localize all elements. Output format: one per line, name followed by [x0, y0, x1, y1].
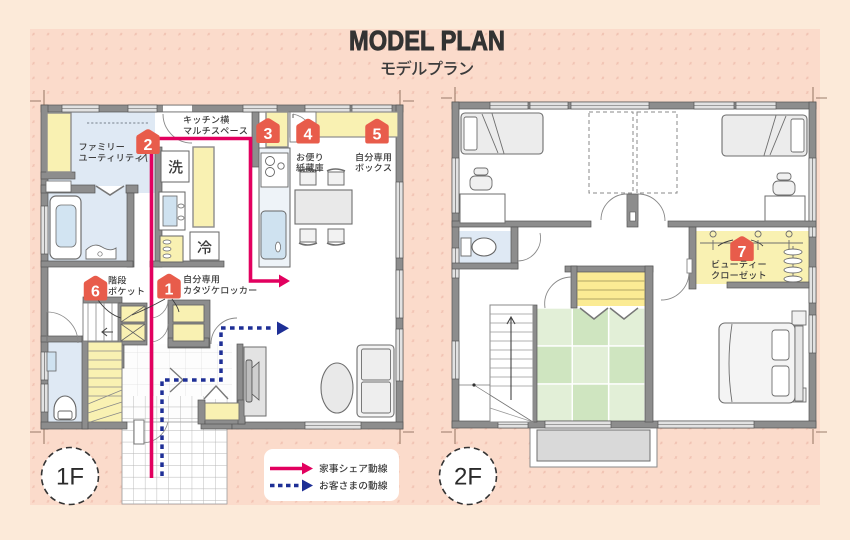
svg-text:1: 1 — [165, 282, 174, 299]
svg-text:2F: 2F — [454, 464, 482, 491]
svg-text:5: 5 — [373, 127, 382, 144]
svg-text:2: 2 — [144, 137, 153, 154]
svg-text:4: 4 — [304, 127, 313, 144]
svg-text:3: 3 — [264, 126, 273, 143]
svg-text:6: 6 — [91, 284, 100, 301]
svg-text:MODEL PLAN: MODEL PLAN — [349, 25, 505, 56]
svg-text:7: 7 — [738, 244, 747, 261]
svg-text:1F: 1F — [56, 464, 84, 491]
